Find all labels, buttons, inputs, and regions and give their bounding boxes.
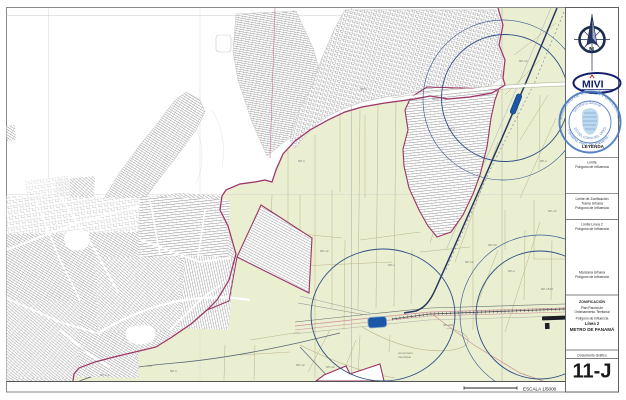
svg-text:LEYENDA: LEYENDA bbox=[582, 144, 605, 149]
svg-text:Ordenamiento Territorial: Ordenamiento Territorial bbox=[574, 310, 610, 314]
svg-text:MIVI: MIVI bbox=[582, 79, 604, 91]
svg-text:Límite Línea 2: Límite Línea 2 bbox=[581, 223, 603, 227]
svg-text:METRO DE PANAMÁ: METRO DE PANAMÁ bbox=[570, 326, 615, 332]
svg-text:Manzana Urbana: Manzana Urbana bbox=[579, 271, 605, 275]
svg-text:NP-1: NP-1 bbox=[540, 159, 547, 163]
svg-text:NP-12: NP-12 bbox=[326, 365, 335, 369]
svg-text:NP-1: NP-1 bbox=[298, 159, 305, 163]
svg-text:municipal: municipal bbox=[398, 355, 411, 359]
svg-text:Línea 2: Línea 2 bbox=[585, 321, 600, 326]
svg-text:N: N bbox=[589, 47, 594, 54]
svg-text:Polígono de Influencia: Polígono de Influencia bbox=[575, 206, 609, 210]
svg-text:NP-2: NP-2 bbox=[508, 269, 515, 273]
svg-text:NP-1: NP-1 bbox=[360, 87, 367, 91]
svg-text:NP-1: NP-1 bbox=[170, 369, 177, 373]
svg-text:NP-2013: NP-2013 bbox=[443, 323, 455, 327]
svg-text:NP-12: NP-12 bbox=[548, 209, 557, 213]
svg-text:NP-1: NP-1 bbox=[388, 263, 395, 267]
svg-text:NP-12: NP-12 bbox=[465, 260, 474, 264]
svg-text:NP-2: NP-2 bbox=[448, 127, 455, 131]
svg-text:NP-12: NP-12 bbox=[296, 363, 305, 367]
svg-text:ESCALA 1/5000: ESCALA 1/5000 bbox=[523, 387, 557, 392]
svg-text:Polígono de Influencia: Polígono de Influencia bbox=[576, 317, 609, 321]
svg-text:Polígono de Influencia: Polígono de Influencia bbox=[575, 275, 609, 279]
svg-text:NP-1513: NP-1513 bbox=[541, 287, 553, 291]
svg-text:Límite de Zonificación: Límite de Zonificación bbox=[576, 197, 609, 201]
svg-text:Límite: Límite bbox=[587, 161, 596, 165]
svg-text:NP-12: NP-12 bbox=[320, 249, 329, 253]
svg-text:NP-03: NP-03 bbox=[488, 243, 497, 247]
svg-text:NP-12: NP-12 bbox=[519, 59, 528, 63]
svg-text:Trama Urbana: Trama Urbana bbox=[581, 202, 603, 206]
svg-text:NP-2: NP-2 bbox=[432, 97, 439, 101]
svg-text:ZONIFICACIÓN: ZONIFICACIÓN bbox=[579, 299, 605, 304]
svg-text:Polígono de Influencia: Polígono de Influencia bbox=[575, 227, 609, 231]
svg-text:11-J: 11-J bbox=[573, 361, 612, 383]
svg-text:Documento Gráfico: Documento Gráfico bbox=[577, 354, 606, 358]
svg-text:Polígono de Influencia: Polígono de Influencia bbox=[575, 165, 609, 169]
svg-text:NP-1.2: NP-1.2 bbox=[100, 373, 110, 377]
